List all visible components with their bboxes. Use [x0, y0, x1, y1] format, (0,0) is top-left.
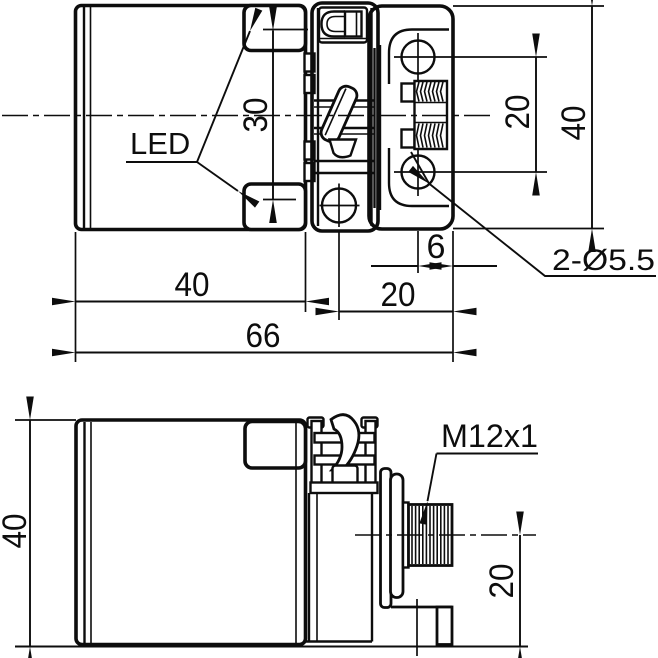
sensor-body-side-view — [76, 420, 306, 645]
bracket-side-view — [381, 469, 453, 657]
dimension-20-hole-spacing: 20 — [499, 57, 537, 172]
dimension-40-body-width: 40 — [76, 266, 306, 304]
dim-40-bracket-height-label: 40 — [555, 106, 593, 141]
clamp-bottom-bar — [311, 483, 378, 494]
holes-callout-label: 2-Ø5.5 — [552, 244, 655, 277]
lock-detail — [319, 8, 367, 43]
dim-30-label: 30 — [237, 98, 275, 133]
dim-66-label: 66 — [246, 317, 281, 355]
dim-20-connector-label: 20 — [483, 564, 521, 599]
lock-body — [345, 12, 362, 37]
side-view: M12x1 40 20 — [0, 415, 538, 656]
clamp-lever — [319, 84, 360, 145]
led-window-bottom — [244, 184, 306, 230]
engineering-drawing-canvas: LED 30 20 40 — [0, 0, 658, 658]
m12-connector-label: M12x1 — [441, 418, 538, 454]
dimension-20-connector-height: 20 — [483, 535, 521, 647]
holes-callout: 2-Ø5.5 — [411, 152, 656, 277]
dimension-66-overall: 66 — [76, 317, 454, 355]
top-view: LED 30 20 40 — [2, 3, 656, 362]
dim-6-label: 6 — [427, 228, 446, 266]
lever-handle — [319, 84, 360, 145]
connector-callout: M12x1 — [428, 418, 539, 501]
dim-20-hole-spacing-label: 20 — [499, 95, 537, 130]
hex-flat — [402, 130, 415, 148]
led-label: LED — [130, 126, 190, 161]
dim-40-body-height-label: 40 — [0, 514, 34, 549]
dim-20-label: 20 — [381, 276, 416, 314]
clamp-side-view — [306, 415, 378, 642]
dimension-40-body-height: 40 — [0, 420, 34, 647]
dimension-6: 6 — [371, 228, 497, 266]
bracket-foot — [437, 607, 452, 645]
dim-40-body-width-label: 40 — [175, 266, 210, 304]
technical-drawing: LED 30 20 40 — [0, 0, 658, 658]
lever-seat — [330, 140, 357, 158]
hex-flat — [402, 84, 415, 102]
led-window-top — [244, 6, 306, 51]
callout-leader — [428, 454, 437, 502]
dimension-20-hole-to-end: 20 — [339, 276, 453, 314]
